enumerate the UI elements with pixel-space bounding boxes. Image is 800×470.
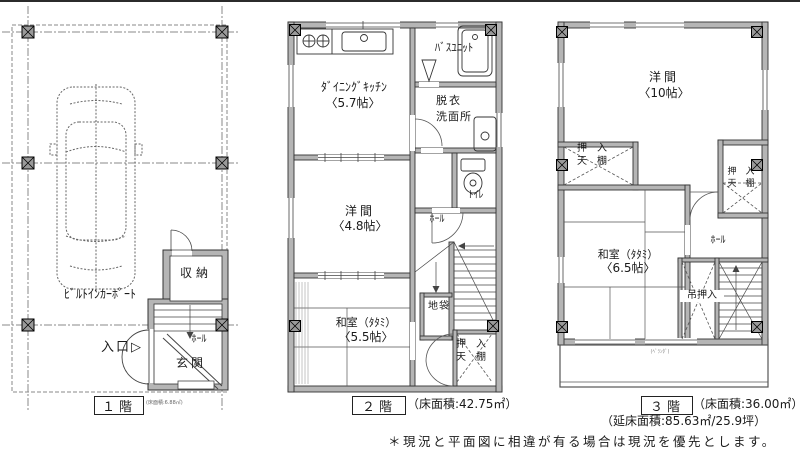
kitchen-counter bbox=[297, 29, 393, 54]
floor3-closet-left-line2: 天 棚 bbox=[566, 155, 618, 168]
floor1-hall-label: ﾎｰﾙ bbox=[180, 334, 218, 346]
tsuri-oshiire-label: 吊押入 bbox=[680, 290, 724, 302]
entrance-door-opening bbox=[146, 329, 156, 383]
jibukuro-label: 地袋 bbox=[422, 301, 456, 313]
floor2-hall-arrowhead bbox=[433, 286, 440, 293]
floor-plan-sheet: ﾋﾞﾙﾄｲﾝｶｰﾎﾟｰﾄ 入口▷ 収納 ﾎｰﾙ 玄関 １階 (床面積:6.88㎡… bbox=[0, 0, 800, 470]
youma2f-size: 〈4.8帖〉 bbox=[332, 220, 388, 234]
column-markers-floor2 bbox=[290, 25, 499, 332]
youma2f-label: 洋間 bbox=[340, 205, 380, 219]
floor3-stair-arrowhead bbox=[733, 265, 740, 272]
floor3-area: （床面積:36.00㎡） bbox=[693, 398, 800, 412]
washitsu2f-hatch bbox=[296, 282, 308, 384]
dining-kitchen-label: ﾀﾞｲﾆﾝｸﾞｷｯﾁﾝ bbox=[308, 81, 400, 95]
bath-unit-label: ﾊﾞｽﾕﾆｯﾄ bbox=[424, 42, 484, 55]
floor2-tag: ２階 bbox=[352, 396, 406, 415]
genkan-label: 玄関 bbox=[170, 357, 212, 371]
senmenjo-label: 洗面所 bbox=[430, 111, 478, 124]
youma3f-size: 〈10帖〉 bbox=[636, 87, 692, 101]
floor3-door-arc bbox=[690, 192, 718, 220]
storage-room-label: 収納 bbox=[172, 267, 220, 281]
floor3-closet-left-line1: 押 入 bbox=[566, 142, 618, 155]
genkan-step-notch bbox=[178, 381, 214, 389]
floor3-closet-right-line1: 押 入 bbox=[718, 166, 764, 178]
washitsu2f-label: 和室（ﾀﾀﾐ） bbox=[330, 317, 402, 330]
washitsu3f-size: 〈6.5帖〉 bbox=[598, 262, 658, 276]
floor2-tag-text: ２階 bbox=[362, 396, 396, 415]
veranda-label: (ﾍﾞﾗﾝﾀﾞ) bbox=[638, 350, 682, 356]
dining-kitchen-size: 〈5.7帖〉 bbox=[322, 97, 384, 111]
floor2-area: （床面積:42.75㎡） bbox=[407, 398, 517, 412]
floor3-closet-right-line2: 天 棚 bbox=[718, 178, 764, 190]
floor3-tag: ３階 bbox=[641, 396, 693, 415]
floor3-tag-text: ３階 bbox=[650, 396, 684, 415]
youma3f-label: 洋間 bbox=[642, 71, 686, 85]
floor1-area-note: (床面積:6.88㎡) bbox=[146, 401, 183, 407]
toilet-fixture bbox=[461, 159, 485, 193]
washitsu2f-size: 〈5.5帖〉 bbox=[338, 331, 394, 345]
floor3-hall-label: ﾎｰﾙ bbox=[702, 235, 734, 247]
floor2-closet-label: 押 入 天 棚 bbox=[448, 338, 494, 364]
floor1-tag: １階 bbox=[94, 396, 144, 415]
storage-door-opening bbox=[172, 248, 192, 258]
floor2-hall-label: ﾎｰﾙ bbox=[422, 214, 452, 226]
car-outline bbox=[50, 84, 142, 292]
floor2-walls bbox=[288, 22, 502, 392]
toilet-label: ﾄｲﾚ bbox=[460, 190, 492, 202]
washitsu3f-label: 和室（ﾀﾀﾐ） bbox=[590, 249, 666, 262]
total-floor-area: （延床面積:85.63㎡/25.9坪） bbox=[601, 415, 766, 429]
disclaimer-note: ＊現況と平面図に相違が有る場合は現況を優先とします。 bbox=[388, 435, 777, 449]
floor2-closet-line2: 天 棚 bbox=[448, 351, 494, 364]
floor2-stair-arrowhead bbox=[458, 243, 465, 250]
floor3-closet-right-label: 押 入 天 棚 bbox=[718, 166, 764, 190]
floor3-plan bbox=[550, 10, 790, 395]
datsui-label: 脱衣 bbox=[433, 95, 465, 108]
floor1-tag-text: １階 bbox=[102, 396, 136, 415]
entrance-door-arcs bbox=[122, 329, 154, 384]
floor2-closet-line1: 押 入 bbox=[448, 338, 494, 351]
carport-label: ﾋﾞﾙﾄｲﾝｶｰﾎﾟｰﾄ bbox=[48, 288, 152, 302]
entrance-label: 入口▷ bbox=[96, 341, 148, 356]
floor3-closet-left-label: 押 入 天 棚 bbox=[566, 142, 618, 168]
floor2-stairs bbox=[415, 242, 496, 326]
